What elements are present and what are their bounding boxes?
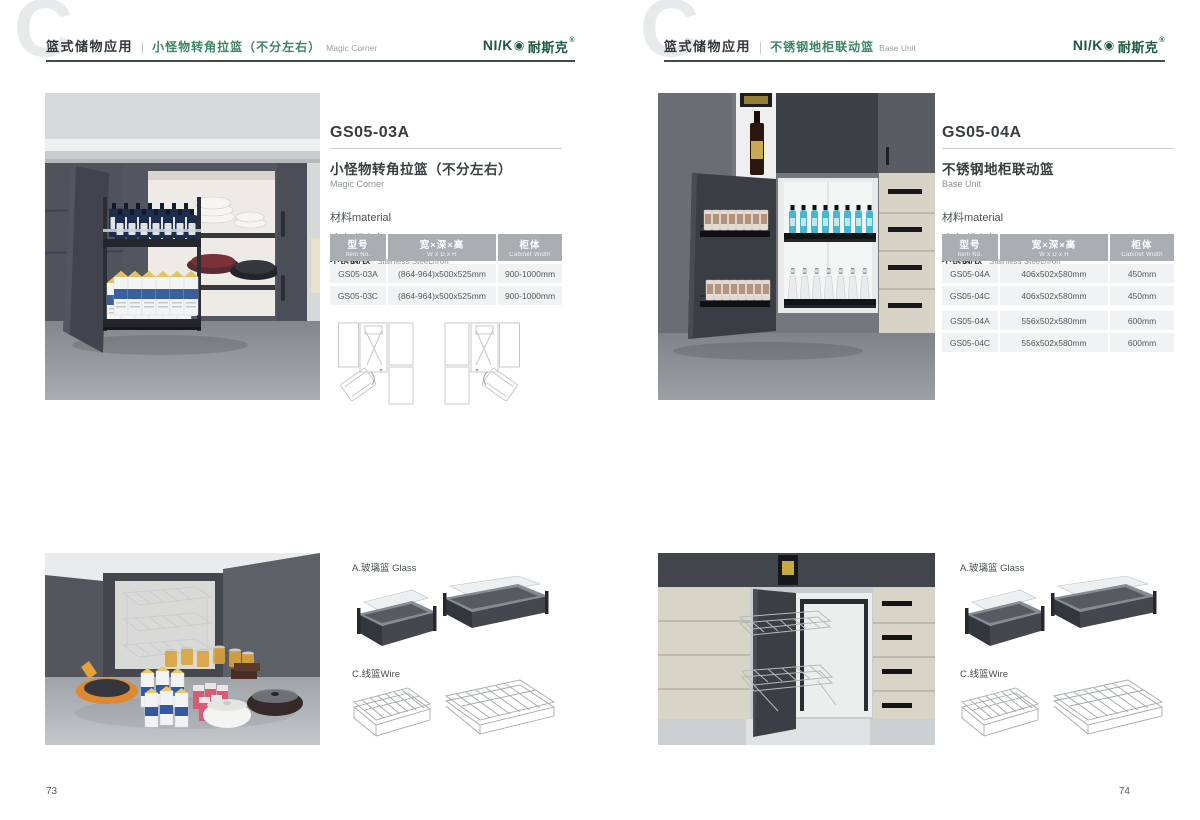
catalog-page-right: C 篮式储物应用 | 不锈钢地柜联动篮 Base Unit NI/K ◉ 耐斯克…: [600, 0, 1200, 820]
spec-cell-size: (864-964)x500x525mm: [388, 286, 496, 305]
spec-row: GS05-04A 556x502x580mm 600mm: [942, 311, 1174, 330]
header-en: Cabinet Width: [509, 252, 551, 258]
spec-table: 型号 Item No. 宽×深×高 W x D x H 柜体 Cabinet W…: [942, 234, 1174, 355]
header-en: Item No.: [957, 252, 982, 258]
catalog-page-left: C 篮式储物应用 | 小怪物转角拉篮（不分左右） Magic Corner NI…: [0, 0, 600, 820]
header-cn: 宽×深×高: [1032, 237, 1077, 251]
brand-logo: NI/K ◉ 耐斯克 ®: [1073, 37, 1165, 56]
header-title-en: Magic Corner: [326, 43, 377, 53]
corner-plan-diagrams: [337, 320, 521, 408]
header-cn: 型号: [347, 237, 368, 251]
header-title-cn: 小怪物转角拉篮（不分左右）: [152, 38, 321, 55]
header-en: W x D x H: [427, 252, 457, 258]
spec-row: GS05-04C 406x502x580mm 450mm: [942, 286, 1174, 305]
logo-latin: NI/K: [1073, 37, 1103, 53]
spec-cell-model: GS05-03C: [330, 286, 386, 305]
header-category: 篮式储物应用: [46, 36, 133, 55]
spec-cell-model: GS05-03A: [330, 264, 386, 283]
spec-row: GS05-04A 406x502x580mm 450mm: [942, 264, 1174, 283]
registered-mark: ®: [569, 37, 575, 44]
logo-chinese: 耐斯克: [528, 37, 569, 56]
spec-header-cell: 宽×深×高 W x D x H: [1000, 234, 1108, 261]
header-separator: |: [759, 40, 762, 54]
glass-basket-illustration: [958, 568, 1170, 660]
spec-cell-cabinet: 450mm: [1110, 286, 1174, 305]
spec-cell-size: 406x502x580mm: [1000, 286, 1108, 305]
page-header: 篮式储物应用 | 小怪物转角拉篮（不分左右） Magic Corner: [46, 36, 377, 55]
spec-row: GS05-03C (864-964)x500x525mm 900-1000mm: [330, 286, 562, 305]
spec-cell-size: (864-964)x500x525mm: [388, 264, 496, 283]
header-rule: [46, 60, 575, 62]
product-model: GS05-04A: [942, 124, 1174, 149]
product-photo-wire-corner: [45, 553, 320, 745]
product-model: GS05-03A: [330, 124, 562, 149]
accessory-section: A.玻璃篮 Glass C.线篮Wire: [958, 556, 1173, 751]
header-en: W x D x H: [1039, 252, 1069, 258]
spec-header-row: 型号 Item No. 宽×深×高 W x D x H 柜体 Cabinet W…: [942, 234, 1174, 261]
product-name-en: Magic Corner: [330, 179, 562, 189]
spec-table: 型号 Item No. 宽×深×高 W x D x H 柜体 Cabinet W…: [330, 234, 562, 308]
target-circle-icon: ◉: [1104, 38, 1115, 52]
product-name-en: Base Unit: [942, 179, 1174, 189]
spec-cell-cabinet: 600mm: [1110, 333, 1174, 352]
spec-header-cell: 宽×深×高 W x D x H: [388, 234, 496, 261]
spec-header-cell: 柜体 Cabinet Width: [1110, 234, 1174, 261]
product-photo-base-unit: [658, 93, 935, 400]
accessory-section: A.玻璃篮 Glass C.线篮Wire: [350, 556, 565, 751]
spec-row: GS05-04C 556x502x580mm 600mm: [942, 333, 1174, 352]
header-en: Item No.: [345, 252, 370, 258]
header-category: 篮式储物应用: [664, 36, 751, 55]
spec-cell-size: 556x502x580mm: [1000, 311, 1108, 330]
spec-cell-cabinet: 600mm: [1110, 311, 1174, 330]
header-title-en: Base Unit: [879, 43, 916, 53]
spec-cell-size: 406x502x580mm: [1000, 264, 1108, 283]
spec-header-row: 型号 Item No. 宽×深×高 W x D x H 柜体 Cabinet W…: [330, 234, 562, 261]
glass-basket-illustration: [350, 568, 562, 660]
wire-basket-illustration: [350, 674, 562, 750]
material-heading: 材料material: [942, 209, 1174, 225]
header-cn: 柜体: [1131, 237, 1152, 251]
product-name-cn: 不锈钢地柜联动篮: [942, 158, 1174, 178]
logo-chinese: 耐斯克: [1118, 37, 1159, 56]
header-en: Cabinet Width: [1121, 252, 1163, 258]
header-title-cn: 不锈钢地柜联动篮: [770, 38, 874, 55]
spec-header-cell: 型号 Item No.: [330, 234, 386, 261]
spec-header-cell: 型号 Item No.: [942, 234, 998, 261]
product-photo-corner-cabinet: [45, 93, 320, 400]
spec-cell-model: GS05-04A: [942, 311, 998, 330]
material-heading: 材料material: [330, 209, 562, 225]
header-separator: |: [141, 40, 144, 54]
spec-cell-model: GS05-04C: [942, 333, 998, 352]
brand-logo: NI/K ◉ 耐斯克 ®: [483, 37, 575, 56]
header-cn: 型号: [959, 237, 980, 251]
target-circle-icon: ◉: [514, 38, 525, 52]
page-number: 74: [1119, 786, 1130, 797]
product-photo-wire-base-unit: [658, 553, 935, 745]
spec-header-cell: 柜体 Cabinet Width: [498, 234, 562, 261]
spec-cell-cabinet: 900-1000mm: [498, 286, 562, 305]
spec-cell-model: GS05-04C: [942, 286, 998, 305]
product-name-cn: 小怪物转角拉篮（不分左右）: [330, 158, 562, 178]
spec-cell-cabinet: 450mm: [1110, 264, 1174, 283]
wire-basket-illustration: [958, 674, 1170, 750]
header-cn: 柜体: [519, 237, 540, 251]
logo-latin: NI/K: [483, 37, 513, 53]
registered-mark: ®: [1159, 37, 1165, 44]
page-number: 73: [46, 786, 57, 797]
spec-cell-model: GS05-04A: [942, 264, 998, 283]
spec-row: GS05-03A (864-964)x500x525mm 900-1000mm: [330, 264, 562, 283]
spec-cell-cabinet: 900-1000mm: [498, 264, 562, 283]
header-cn: 宽×深×高: [420, 237, 465, 251]
page-header: 篮式储物应用 | 不锈钢地柜联动篮 Base Unit: [664, 36, 916, 55]
header-rule: [664, 60, 1165, 62]
spec-cell-size: 556x502x580mm: [1000, 333, 1108, 352]
